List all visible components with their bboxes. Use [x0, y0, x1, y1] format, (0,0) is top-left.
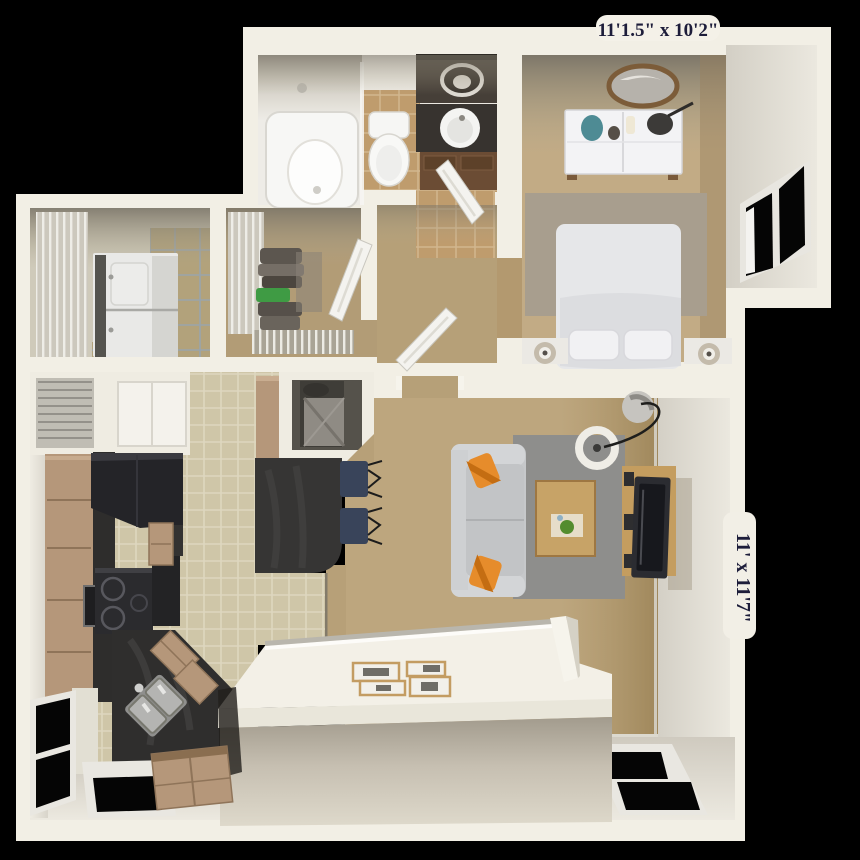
- svg-text:11' x 11'7": 11' x 11'7": [732, 533, 754, 623]
- svg-text:11'1.5" x 10'2": 11'1.5" x 10'2": [598, 20, 719, 41]
